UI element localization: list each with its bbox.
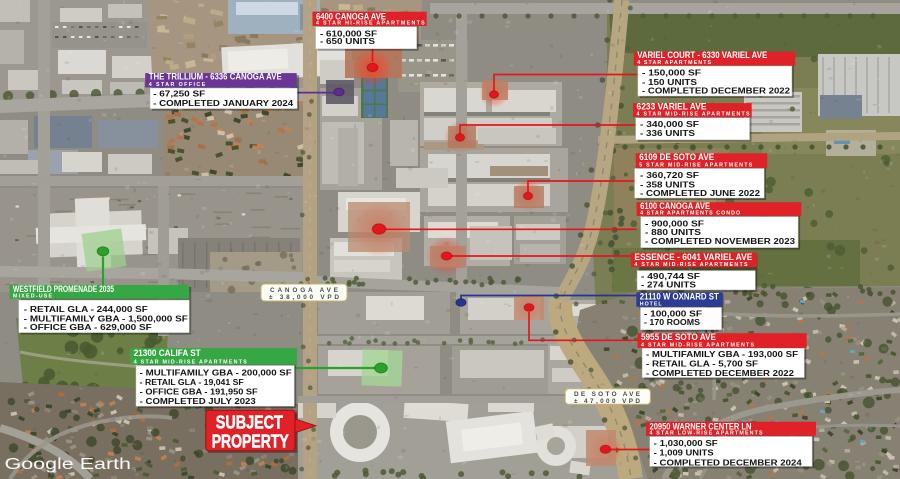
svg-text:Google Earth: Google Earth — [5, 456, 132, 473]
svg-text:- COMPLETED JANUARY 2024: - COMPLETED JANUARY 2024 — [153, 98, 293, 108]
svg-text:SUBJECT: SUBJECT — [216, 411, 284, 432]
svg-text:4 STAR OFFICE: 4 STAR OFFICE — [149, 82, 206, 88]
svg-text:4 STAR HI-RISE APARTMENTS: 4 STAR HI-RISE APARTMENTS — [316, 21, 425, 27]
svg-text:6109 DE SOTO AVE: 6109 DE SOTO AVE — [639, 152, 715, 163]
svg-text:- RETAIL GLA - 19,041 SF: - RETAIL GLA - 19,041 SF — [140, 377, 244, 387]
svg-text:HOTEL: HOTEL — [640, 301, 663, 307]
svg-text:- 1,030,000 SF: - 1,030,000 SF — [654, 438, 718, 448]
svg-text:± 47,000 VPD: ± 47,000 VPD — [574, 398, 640, 405]
svg-text:4 STAR APARTMENTS CONDO: 4 STAR APARTMENTS CONDO — [640, 211, 740, 217]
svg-text:± 38,000 VPD: ± 38,000 VPD — [269, 294, 339, 301]
svg-text:- OFFICE GBA - 629,000 SF: - OFFICE GBA - 629,000 SF — [24, 322, 152, 332]
svg-text:6233 VARIEL AVE: 6233 VARIEL AVE — [637, 101, 708, 112]
svg-text:- COMPLETED NOVEMBER 2023: - COMPLETED NOVEMBER 2023 — [645, 236, 795, 246]
svg-text:MIXED-USE: MIXED-USE — [13, 293, 53, 299]
svg-text:- COMPLETED JUNE 2022: - COMPLETED JUNE 2022 — [640, 188, 760, 198]
svg-text:4 STAR APARTMENTS: 4 STAR APARTMENTS — [637, 60, 711, 66]
svg-text:21300 CALIFA ST: 21300 CALIFA ST — [134, 348, 201, 359]
svg-text:- COMPLETED DECEMBER 2022: - COMPLETED DECEMBER 2022 — [646, 368, 794, 378]
svg-text:- COMPLETED DECEMBER 2024: - COMPLETED DECEMBER 2024 — [654, 457, 802, 467]
svg-text:- COMPLETED DECEMBER 2022: - COMPLETED DECEMBER 2022 — [642, 85, 790, 95]
svg-text:THE TRILLIUM - 6336 CANOGA AVE: THE TRILLIUM - 6336 CANOGA AVE — [149, 71, 282, 82]
svg-text:- 336 UNITS: - 336 UNITS — [640, 128, 695, 138]
svg-text:CANOGA AVE: CANOGA AVE — [270, 287, 339, 294]
svg-text:VARIEL COURT - 6330 VARIEL AVE: VARIEL COURT - 6330 VARIEL AVE — [637, 50, 767, 61]
svg-text:4 STAR LOW-RISE APARTMENTS: 4 STAR LOW-RISE APARTMENTS — [650, 430, 764, 436]
svg-text:5955 DE SOTO AVE: 5955 DE SOTO AVE — [641, 332, 717, 343]
svg-text:- 170 ROOMS: - 170 ROOMS — [644, 317, 700, 327]
svg-text:PROPERTY: PROPERTY — [212, 430, 289, 451]
svg-text:- 650 UNITS: - 650 UNITS — [320, 36, 375, 46]
svg-text:- 67,250 SF: - 67,250 SF — [153, 88, 205, 98]
svg-text:- 1,009 UNITS: - 1,009 UNITS — [654, 448, 714, 458]
svg-text:- MULTIFAMILY GBA - 200,000 SF: - MULTIFAMILY GBA - 200,000 SF — [140, 367, 292, 377]
svg-text:- COMPLETED JULY 2023: - COMPLETED JULY 2023 — [140, 396, 256, 406]
svg-text:- 274 UNITS: - 274 UNITS — [641, 280, 696, 290]
svg-text:- MULTIFAMILY GBA - 193,000 SF: - MULTIFAMILY GBA - 193,000 SF — [646, 349, 798, 359]
